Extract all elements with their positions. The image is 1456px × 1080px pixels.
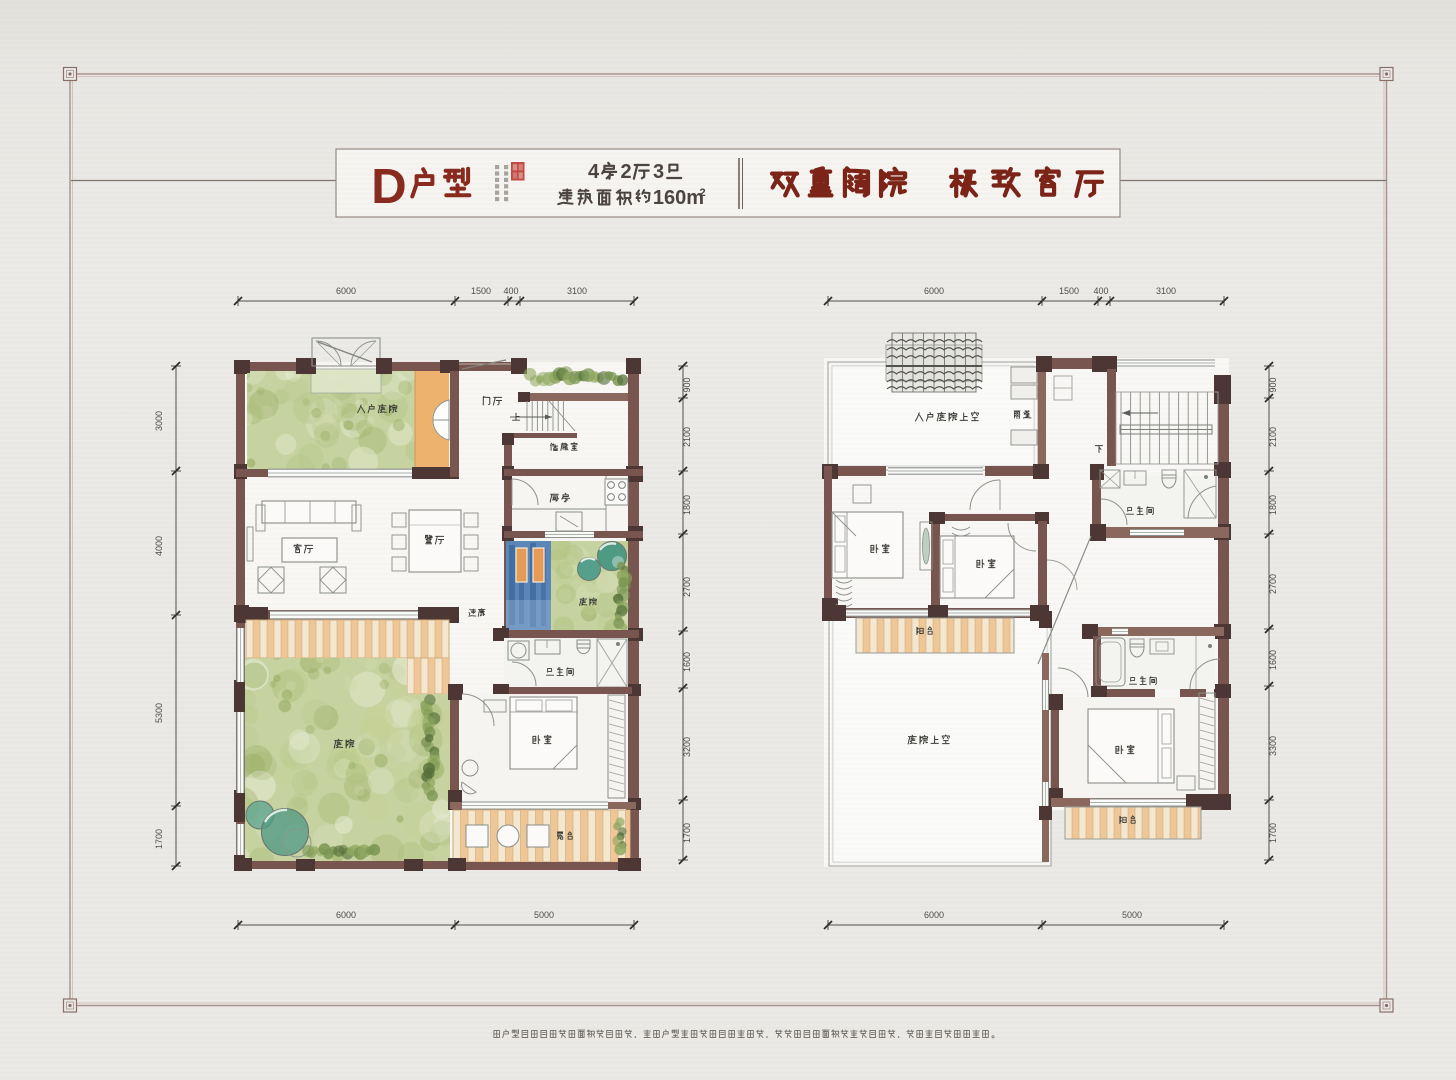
svg-text:5300: 5300	[154, 703, 164, 723]
svg-text:1800: 1800	[682, 495, 692, 515]
svg-text:1600: 1600	[1268, 650, 1278, 670]
svg-text:3: 3	[653, 161, 664, 183]
svg-text:900: 900	[682, 377, 692, 392]
svg-text:1500: 1500	[471, 286, 491, 296]
svg-text:1500: 1500	[1059, 286, 1079, 296]
svg-text:400: 400	[503, 286, 518, 296]
svg-text:2: 2	[620, 161, 631, 183]
svg-text:1800: 1800	[1268, 495, 1278, 515]
svg-text:4000: 4000	[154, 536, 164, 556]
svg-text:6000: 6000	[336, 286, 356, 296]
svg-text:1700: 1700	[1268, 823, 1278, 843]
svg-text:2: 2	[699, 187, 705, 199]
svg-text:3100: 3100	[1156, 286, 1176, 296]
svg-text:4: 4	[588, 161, 600, 183]
svg-text:3000: 3000	[154, 411, 164, 431]
svg-text:2700: 2700	[682, 577, 692, 597]
svg-text:400: 400	[1093, 286, 1108, 296]
svg-text:2100: 2100	[682, 427, 692, 447]
svg-text:3200: 3200	[682, 737, 692, 757]
svg-text:6000: 6000	[336, 910, 356, 920]
svg-text:900: 900	[1268, 377, 1278, 392]
svg-text:D: D	[371, 160, 406, 214]
svg-text:1700: 1700	[682, 823, 692, 843]
svg-text:5000: 5000	[534, 910, 554, 920]
svg-text:2100: 2100	[1268, 427, 1278, 447]
svg-text:2700: 2700	[1268, 574, 1278, 594]
svg-text:1700: 1700	[154, 829, 164, 849]
svg-text:160m: 160m	[653, 187, 704, 209]
svg-text:6000: 6000	[924, 286, 944, 296]
svg-text:3100: 3100	[567, 286, 587, 296]
svg-text:1600: 1600	[682, 652, 692, 672]
svg-text:6000: 6000	[924, 910, 944, 920]
svg-text:3300: 3300	[1268, 736, 1278, 756]
svg-text:5000: 5000	[1122, 910, 1142, 920]
